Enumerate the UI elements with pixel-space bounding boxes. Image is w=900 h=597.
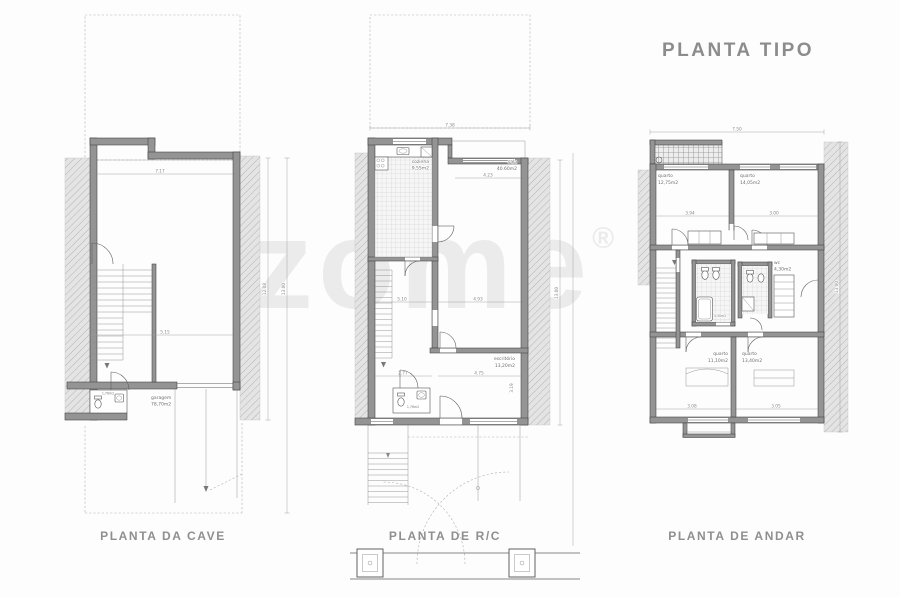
earth-hatch-right: [528, 158, 550, 425]
dim-label: 7.17: [155, 169, 165, 175]
earth-hatch-left: [65, 158, 90, 420]
terrace-outline: [452, 141, 525, 158]
stairs-arrow: [381, 362, 386, 368]
earth-hatch-left: [638, 170, 650, 285]
dim-label: 5.15: [160, 330, 170, 336]
gate-post-left: [357, 549, 383, 577]
room-garagem: garagem 78,70m2: [151, 395, 171, 408]
stairs: [375, 270, 392, 358]
dim-label: 13.00: [554, 287, 560, 300]
room-area: 1,76m2: [102, 391, 114, 395]
rc-lot-outline: [370, 15, 530, 128]
gate-post-right: [509, 549, 535, 577]
dim-label: 3.00: [769, 211, 779, 217]
bathroom-2: [738, 262, 772, 330]
room-quarto1: quarto 12,75m2 3.94: [656, 173, 729, 244]
room-escritorio: escritório 13,20m2 4.75 2.77 3.19: [375, 355, 521, 393]
room-area: 4,30m2: [714, 314, 726, 318]
front-yard: [350, 425, 580, 579]
dim-label: 4.75: [474, 371, 484, 377]
earth-hatch-right: [240, 156, 260, 420]
watermark-registered-mark: ®: [592, 222, 614, 255]
bottom-balcony: [683, 423, 735, 438]
andar-walls: [650, 164, 824, 423]
room-area: 4,30m2: [774, 267, 791, 273]
page-title: PLANTA TIPO: [662, 40, 814, 62]
rc-dim-right: [558, 153, 574, 546]
gate-swing-left: [383, 482, 465, 564]
entry-steps: [368, 453, 408, 503]
dim-label: 5.10: [397, 297, 407, 303]
cave-walls: [65, 138, 240, 420]
dim-label: 4.93: [473, 297, 483, 303]
closet: [774, 275, 818, 317]
room-name: quarto: [713, 351, 728, 357]
room-name: quarto: [740, 173, 755, 179]
room-area: 9,55m2: [412, 166, 429, 172]
room-area: 11,10m2: [708, 358, 728, 364]
room-name: wc: [774, 261, 781, 266]
stairs: [90, 264, 155, 360]
room-name: escritório: [494, 355, 515, 362]
stairs-arrow: [105, 363, 110, 369]
room-area: 78,70m2: [151, 402, 171, 408]
andar-plan: 7.50: [628, 112, 878, 492]
room-name: sala: [508, 159, 517, 165]
stove-icon: [375, 157, 388, 170]
room-wc2-label: wc 4,30m2: [774, 261, 791, 273]
dim-label: 7.50: [732, 127, 742, 133]
plan-label-cave: PLANTA DA CAVE: [63, 529, 263, 543]
room-name: quarto: [658, 173, 673, 179]
room-area: 13,40m2: [742, 358, 762, 364]
room-name: quarto: [742, 351, 757, 357]
room-area: 40.60m2: [497, 166, 517, 172]
room-name: cozinha: [412, 159, 430, 165]
room-area: 12,75m2: [658, 180, 678, 186]
rc-plan: 7.38: [345, 8, 585, 593]
room-name: garagem: [151, 395, 171, 401]
dim-label: 3.05: [771, 404, 781, 410]
room-area: 1,76m2: [407, 405, 419, 409]
dim-label: 7.38: [445, 123, 455, 129]
dim-label: 3.08: [687, 404, 697, 410]
cave-plan: 7.50 7.17 5.15: [55, 8, 305, 528]
dim-label: 13.00: [834, 281, 840, 294]
kitchen: cozinha 9,55m2: [375, 145, 432, 257]
plan-label-andar: PLANTA DE ANDAR: [637, 529, 837, 543]
room-quarto4: quarto 13,40m2 3.05: [736, 351, 818, 410]
dim-label: 4.23: [483, 173, 493, 179]
floorplan-sheet: zome® PLANTA TIPO 7.50 7.17 5.15: [0, 0, 900, 597]
steps-arrow: [386, 453, 390, 458]
room-area: 14,05m2: [740, 180, 760, 186]
gate-swing-right: [417, 472, 509, 564]
plan-label-rc: PLANTA DE R/C: [345, 529, 545, 543]
room-quarto3: quarto 11,10m2 3.08: [656, 351, 731, 410]
dim-label: 3.94: [685, 211, 695, 217]
dim-label: 13.00: [281, 283, 287, 296]
dim-label: 12.08: [262, 283, 268, 296]
bathroom-1: 4,30m2: [692, 260, 735, 326]
room-area: 13,20m2: [495, 363, 515, 369]
garage-door: [177, 384, 233, 388]
cave-dim-right: [266, 158, 290, 513]
dim-label: 3.19: [509, 383, 515, 393]
